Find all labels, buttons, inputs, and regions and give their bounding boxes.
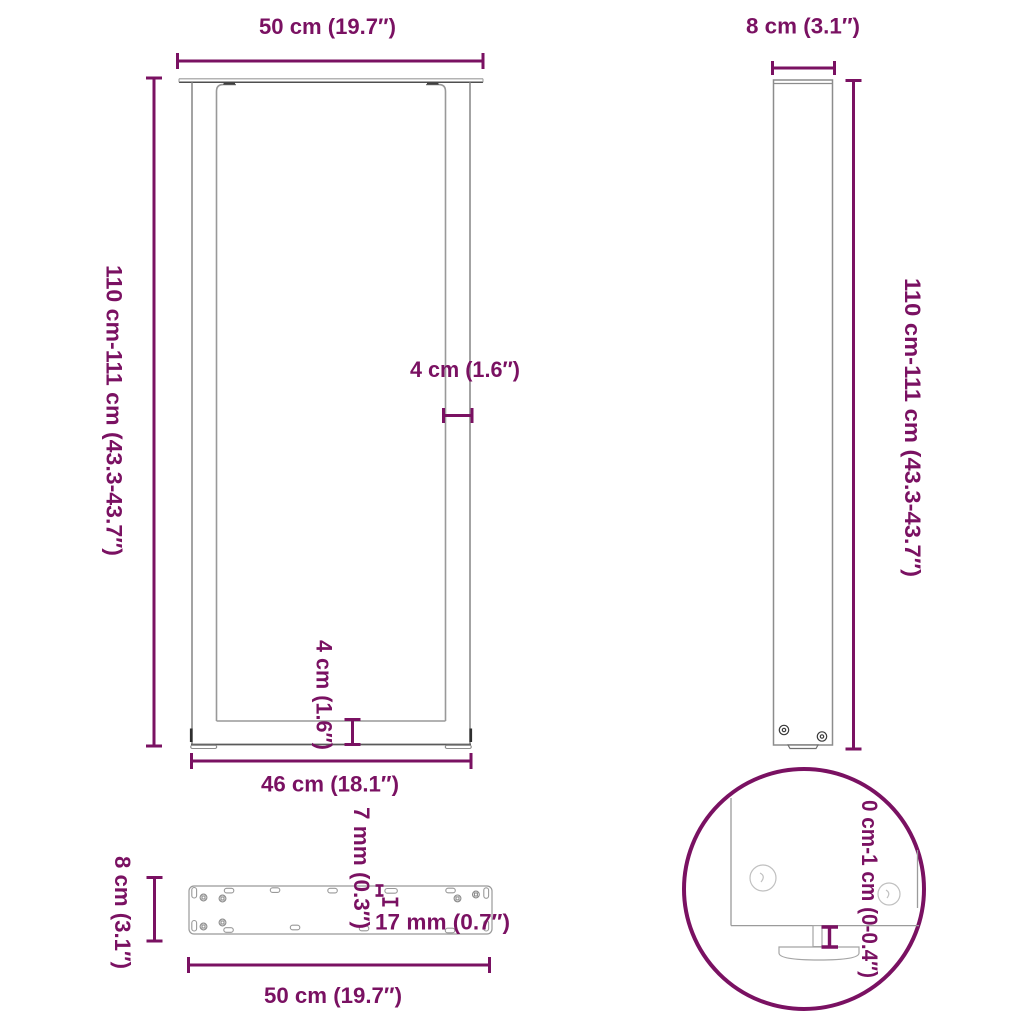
svg-text:8 cm (3.1″): 8 cm (3.1″) <box>746 14 860 39</box>
svg-text:50 cm (19.7″): 50 cm (19.7″) <box>264 983 402 1008</box>
svg-text:17 mm (0.7″): 17 mm (0.7″) <box>375 910 510 935</box>
svg-text:4 cm (1.6″): 4 cm (1.6″) <box>312 640 337 750</box>
svg-text:46 cm (18.1″): 46 cm (18.1″) <box>261 772 399 797</box>
svg-text:8 cm (3.1″): 8 cm (3.1″) <box>110 856 135 969</box>
svg-text:110 cm-111 cm (43.3-43.7″): 110 cm-111 cm (43.3-43.7″) <box>102 265 127 556</box>
svg-text:0 cm-1 cm (0-0.4″): 0 cm-1 cm (0-0.4″) <box>857 800 882 978</box>
svg-text:7 mm (0.3″): 7 mm (0.3″) <box>349 807 374 929</box>
svg-text:50 cm (19.7″): 50 cm (19.7″) <box>259 14 396 39</box>
svg-text:110 cm-111 cm (43.3-43.7″): 110 cm-111 cm (43.3-43.7″) <box>900 278 925 577</box>
svg-text:4 cm (1.6″): 4 cm (1.6″) <box>410 357 520 382</box>
